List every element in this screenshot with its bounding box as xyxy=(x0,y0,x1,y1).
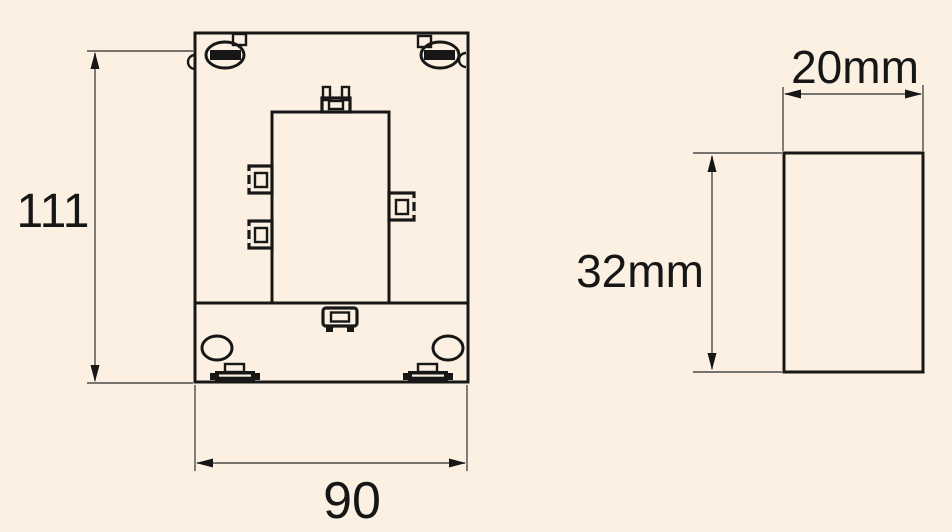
foot-tab xyxy=(418,364,437,372)
terminal-clamp-top xyxy=(322,87,350,112)
height-dimension: 111 xyxy=(17,51,193,383)
base-hole-left xyxy=(202,336,232,360)
arrowhead-down xyxy=(708,353,717,370)
foot-nub xyxy=(210,373,216,380)
terminal-clamp-bottom xyxy=(323,308,357,332)
clamp-notch xyxy=(248,184,251,188)
depth-dimension-label: 20mm xyxy=(791,41,919,93)
mounting-screw-top-left xyxy=(188,34,246,69)
base-hole-right xyxy=(433,336,463,360)
clamp-foot xyxy=(326,326,333,332)
foot-tab xyxy=(225,364,244,372)
clamp-notch xyxy=(413,211,416,215)
clamp-inner xyxy=(255,228,267,242)
terminal-clamp-left-lower xyxy=(248,221,273,248)
width-dimension-label: 90 xyxy=(323,472,381,530)
foot-slit xyxy=(219,375,251,377)
technical-drawing-canvas: 111 90 20mm xyxy=(0,0,952,532)
side-view: 20mm 32mm xyxy=(576,41,923,372)
clamp-frame xyxy=(249,166,272,193)
clamp-frame xyxy=(323,308,357,326)
dimension-drawing: 111 90 20mm xyxy=(0,0,952,532)
width-dimension: 90 xyxy=(195,385,467,530)
clamp-notch xyxy=(248,239,251,243)
depth-dimension: 20mm xyxy=(783,41,923,151)
arrowhead-up xyxy=(91,52,100,69)
edge-notch xyxy=(459,53,466,67)
foot-slit xyxy=(412,375,444,377)
side-height-dimension: 32mm xyxy=(576,153,782,372)
mounting-foot-left xyxy=(210,364,260,382)
screw-slot xyxy=(424,50,455,60)
clamp-inner xyxy=(331,313,349,322)
screw-slot xyxy=(210,50,241,60)
clamp-notch xyxy=(248,171,251,175)
clamp-inner xyxy=(329,101,343,109)
clamp-frame xyxy=(249,221,272,248)
clamp-frame xyxy=(389,193,414,220)
terminal-clamp-right xyxy=(389,193,416,220)
foot-nub xyxy=(403,373,409,380)
mounting-screw-top-right xyxy=(418,36,466,68)
front-view: 111 90 xyxy=(17,33,468,530)
arrowhead-up xyxy=(708,155,717,172)
foot-nub xyxy=(447,373,453,380)
clamp-notch xyxy=(248,226,251,230)
arrowhead-right xyxy=(449,459,466,468)
terminal-clamp-left-upper xyxy=(248,166,273,193)
side-view-outline xyxy=(784,153,923,372)
clamp-inner xyxy=(396,200,408,214)
foot-nub xyxy=(254,373,260,380)
arrowhead-down xyxy=(91,365,100,382)
height-dimension-label: 111 xyxy=(17,185,90,238)
clamp-foot xyxy=(347,326,354,332)
mounting-foot-right xyxy=(403,364,453,382)
arrowhead-left xyxy=(196,459,213,468)
front-view-window-opening xyxy=(272,112,389,303)
clamp-notch xyxy=(413,198,416,202)
clamp-inner xyxy=(255,173,267,187)
side-height-dimension-label: 32mm xyxy=(576,245,704,297)
